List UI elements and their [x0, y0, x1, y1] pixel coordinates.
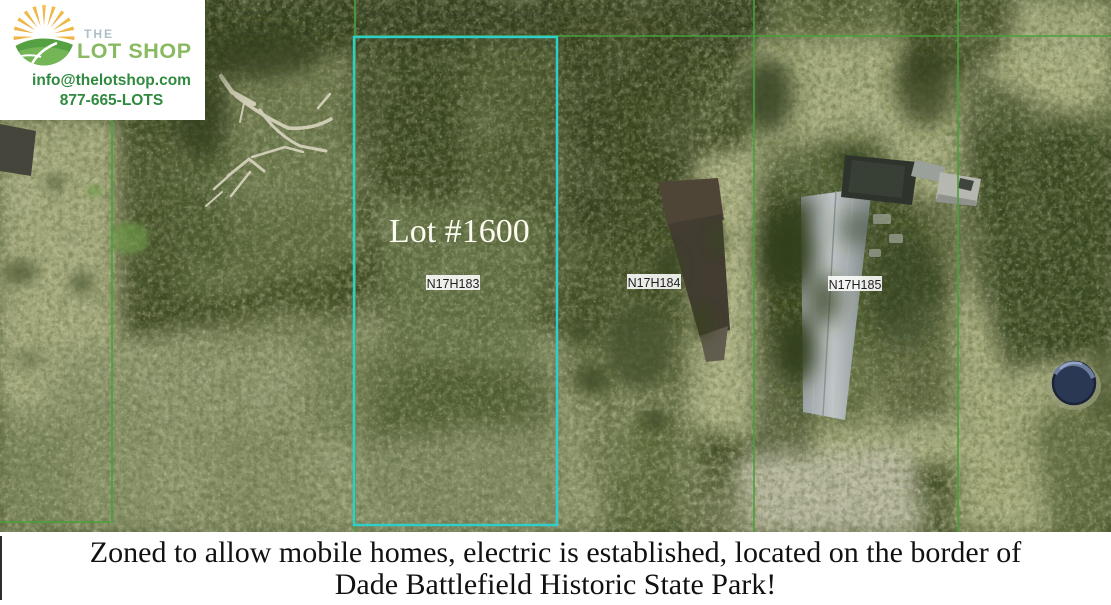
svg-text:Lot #1600: Lot #1600: [389, 213, 530, 250]
svg-text:N17H184: N17H184: [628, 276, 681, 290]
svg-text:N17H185: N17H185: [829, 278, 882, 292]
svg-text:N17H183: N17H183: [427, 277, 480, 291]
